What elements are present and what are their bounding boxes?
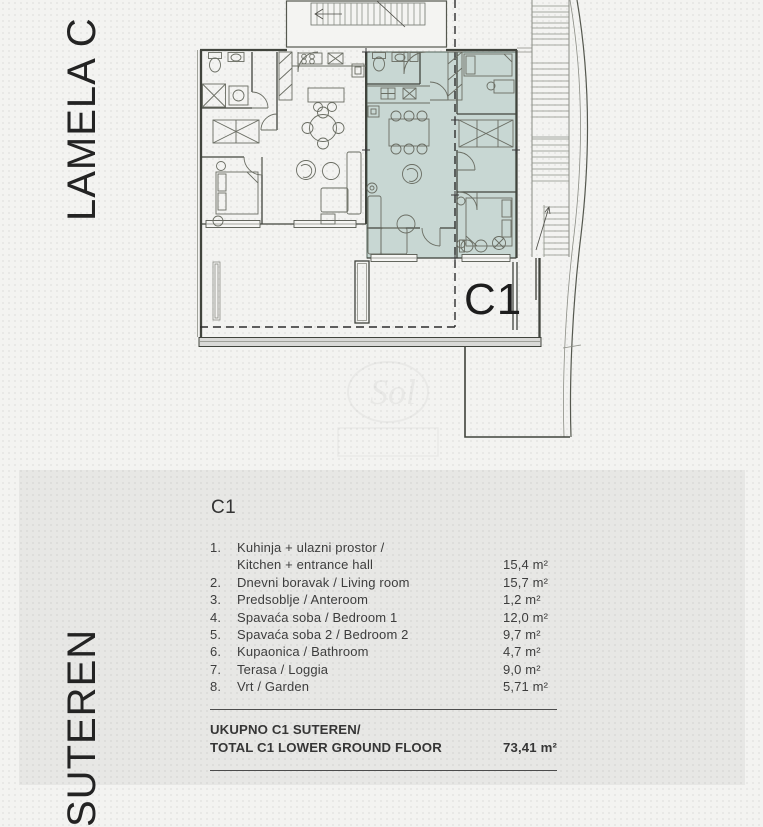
room-row: 8.Vrt / Garden5,71 m²: [210, 678, 558, 695]
room-name: Kuhinja + ulazni prostor /Kitchen + entr…: [237, 539, 503, 574]
room-area: 9,0 m²: [503, 661, 558, 678]
room-row: 3.Predsoblje / Anteroom1,2 m²: [210, 591, 558, 608]
room-area: 15,4 m²: [503, 556, 558, 573]
room-area: 9,7 m²: [503, 626, 558, 643]
room-row: 1.Kuhinja + ulazni prostor /Kitchen + en…: [210, 539, 558, 574]
total-label: UKUPNO C1 SUTEREN/ TOTAL C1 LOWER GROUND…: [210, 721, 503, 756]
floorplan-sheet: { "page": { "accent_teal": "#c8d7d3", "l…: [0, 0, 763, 785]
room-name: Terasa / Loggia: [237, 661, 503, 678]
top-stairs: [287, 1, 447, 47]
room-name: Spavaća soba / Bedroom 1: [237, 609, 503, 626]
room-number: 6.: [210, 643, 237, 660]
room-number: 1.: [210, 539, 237, 556]
left-unit-interior: [201, 52, 366, 226]
room-number: 3.: [210, 591, 237, 608]
room-area: 1,2 m²: [503, 591, 558, 608]
room-row: 4.Spavaća soba / Bedroom 112,0 m²: [210, 609, 558, 626]
room-row: 2.Dnevni boravak / Living room15,7 m²: [210, 574, 558, 591]
total-area: 73,41 m²: [503, 739, 558, 757]
room-number: 8.: [210, 678, 237, 695]
site-path-curves: [563, 0, 587, 437]
room-name: Dnevni boravak / Living room: [237, 574, 503, 591]
room-row: 6.Kupaonica / Bathroom4,7 m²: [210, 643, 558, 660]
terrace-columns: [213, 261, 369, 323]
room-name: Vrt / Garden: [237, 678, 503, 695]
schedule-title: C1: [211, 497, 236, 519]
floor-plan: C1 Sol: [0, 0, 763, 460]
room-row: 5.Spavaća soba 2 / Bedroom 29,7 m²: [210, 626, 558, 643]
divider-bottom: [210, 770, 557, 771]
room-number: 7.: [210, 661, 237, 678]
external-stairs: [517, 0, 569, 300]
room-area: 4,7 m²: [503, 643, 558, 660]
garden-outline: [465, 346, 570, 437]
total-row: UKUPNO C1 SUTEREN/ TOTAL C1 LOWER GROUND…: [210, 721, 558, 756]
room-number: 5.: [210, 626, 237, 643]
room-row: 7.Terasa / Loggia9,0 m²: [210, 661, 558, 678]
room-area: 5,71 m²: [503, 678, 558, 695]
watermark: Sol: [338, 362, 438, 456]
svg-text:Sol: Sol: [370, 372, 416, 412]
room-area: 12,0 m²: [503, 609, 558, 626]
plan-unit-label: C1: [464, 275, 522, 324]
room-area: 15,7 m²: [503, 574, 558, 591]
room-number: 2.: [210, 574, 237, 591]
room-number: 4.: [210, 609, 237, 626]
room-name: Kupaonica / Bathroom: [237, 643, 503, 660]
room-name: Predsoblje / Anteroom: [237, 591, 503, 608]
divider-top: [210, 709, 557, 710]
room-name: Spavaća soba 2 / Bedroom 2: [237, 626, 503, 643]
room-table: 1.Kuhinja + ulazni prostor /Kitchen + en…: [210, 539, 558, 696]
